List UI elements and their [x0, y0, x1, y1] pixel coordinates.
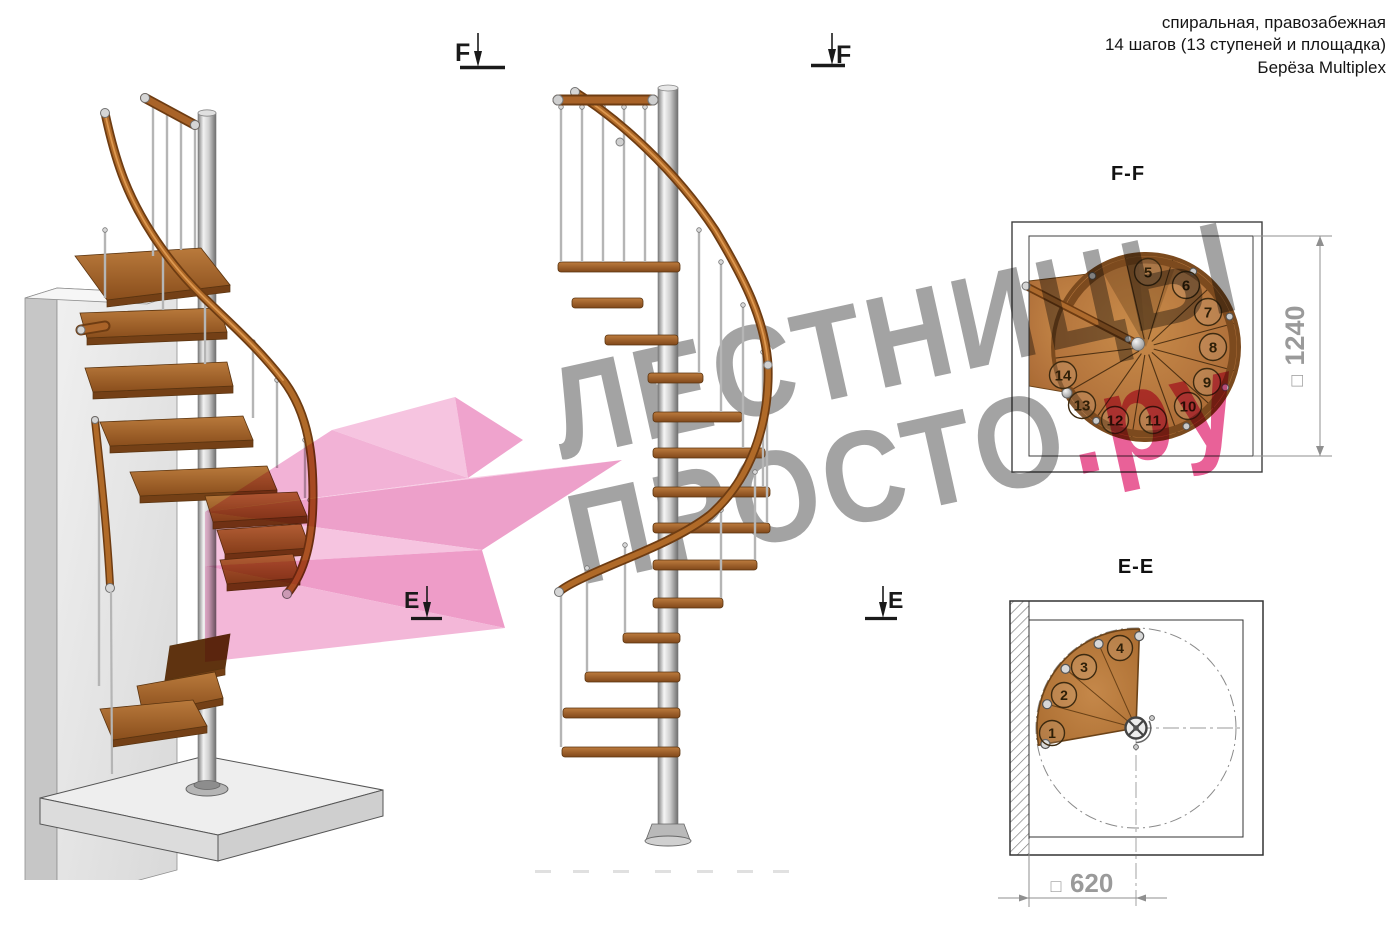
- marker-arrow: [474, 51, 482, 67]
- ff-dimension-text: □ 1240: [1280, 305, 1310, 386]
- step-number-1: 1: [1040, 721, 1065, 746]
- step-number-4: 4: [1108, 636, 1133, 661]
- section-label-ee: E-E: [1101, 556, 1171, 579]
- svg-text:4: 4: [1116, 640, 1124, 656]
- title-line-steps: 14 шагов (13 ступеней и площадка): [1105, 34, 1386, 56]
- svg-text:3: 3: [1080, 659, 1088, 675]
- step-number-2: 2: [1052, 683, 1077, 708]
- ee-dimension-text: □ 620: [1051, 868, 1114, 898]
- marker-letter: E: [888, 587, 903, 613]
- title-block: спиральная, правозабежная 14 шагов (13 с…: [1105, 12, 1386, 79]
- title-line-material: Берёза Multiplex: [1105, 57, 1386, 79]
- elevation-ground-shadow: [535, 870, 789, 873]
- section-marker-e-right: E: [858, 580, 928, 635]
- svg-text:1: 1: [1048, 725, 1056, 741]
- ee-centerlines: [1136, 728, 1243, 907]
- marker-arrow: [879, 602, 887, 618]
- title-line-type: спиральная, правозабежная: [1105, 12, 1386, 34]
- drawing-sheet: спиральная, правозабежная 14 шагов (13 с…: [0, 0, 1400, 934]
- plan-view-ee: □ 620 1234: [990, 555, 1360, 920]
- ee-center-pole: [1126, 716, 1155, 750]
- section-label-ff: F-F: [1093, 163, 1163, 186]
- marker-arrow: [423, 602, 431, 618]
- step-number-3: 3: [1072, 655, 1097, 680]
- section-marker-e-left: E: [396, 580, 466, 635]
- marker-arrow: [828, 49, 836, 65]
- ee-wall-hatch: [1010, 601, 1029, 855]
- section-marker-f-left: F: [443, 23, 513, 78]
- marker-letter: E: [404, 587, 419, 613]
- section-marker-f-right: F: [805, 23, 875, 78]
- svg-text:2: 2: [1060, 687, 1068, 703]
- elevation-center-pole: [645, 85, 691, 846]
- marker-letter: F: [455, 39, 470, 67]
